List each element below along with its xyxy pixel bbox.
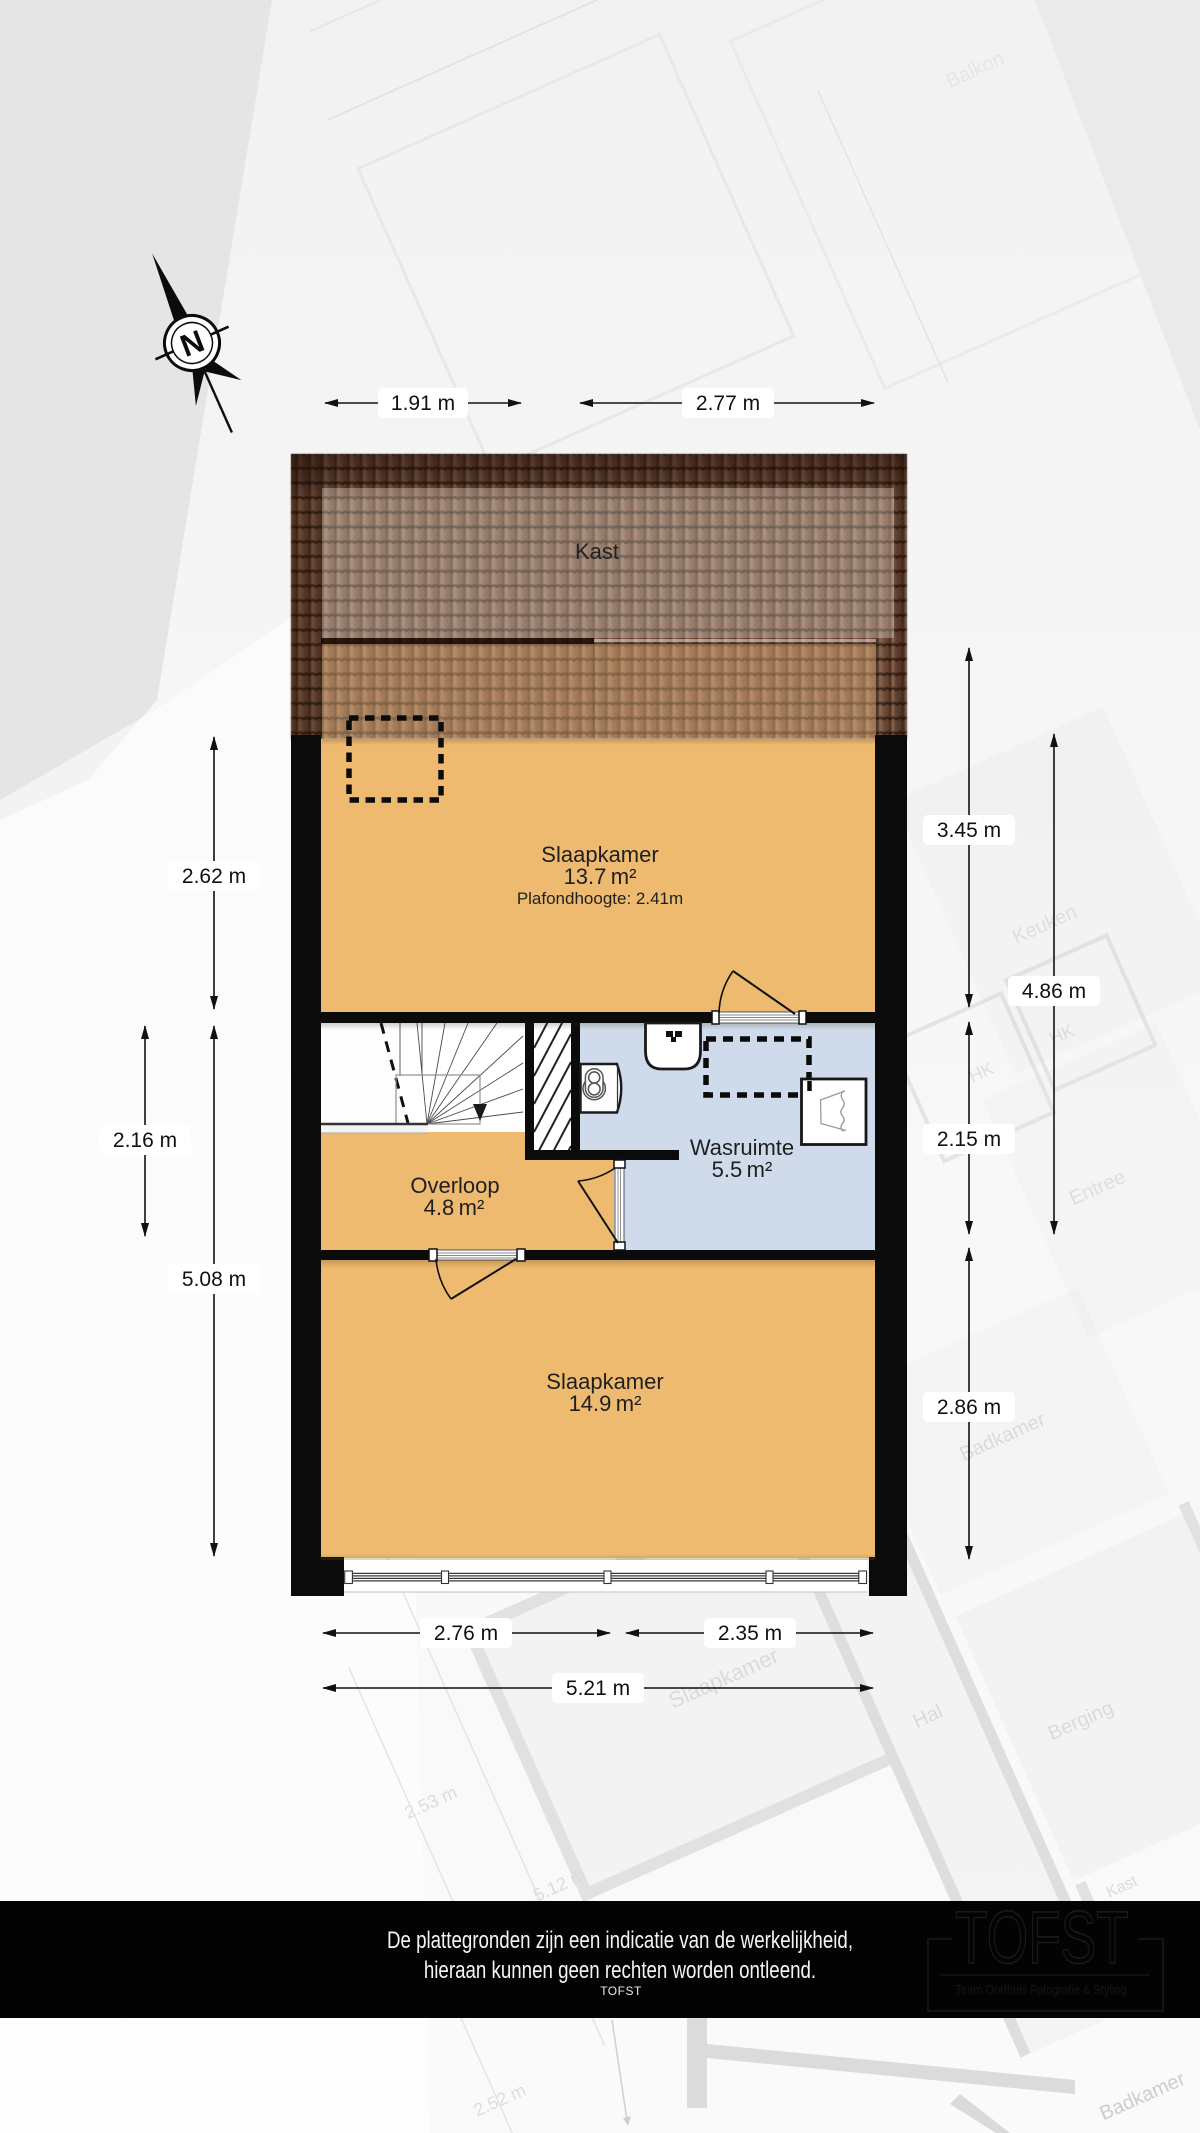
svg-text:2.35 m: 2.35 m	[718, 1622, 782, 1645]
svg-text:4.8 m²: 4.8 m²	[424, 1195, 485, 1220]
svg-text:3.45 m: 3.45 m	[937, 819, 1001, 842]
svg-text:2.16 m: 2.16 m	[113, 1129, 177, 1152]
svg-text:Plafondhoogte: 2.41m: Plafondhoogte: 2.41m	[517, 889, 683, 908]
svg-text:Team Oorthuis Fotografie & Sty: Team Oorthuis Fotografie & Styling	[955, 1982, 1126, 1997]
svg-text:4.86 m: 4.86 m	[1022, 980, 1086, 1003]
svg-text:2.86 m: 2.86 m	[937, 1396, 1001, 1419]
svg-text:13.7 m²: 13.7 m²	[564, 864, 637, 889]
svg-text:5.5 m²: 5.5 m²	[712, 1157, 773, 1182]
svg-text:TOFST: TOFST	[600, 1984, 642, 1998]
svg-text:5.08 m: 5.08 m	[182, 1268, 246, 1291]
svg-text:Kast: Kast	[575, 539, 619, 564]
svg-text:14.9 m²: 14.9 m²	[569, 1391, 642, 1416]
svg-text:2.62 m: 2.62 m	[182, 865, 246, 888]
svg-text:2.15 m: 2.15 m	[937, 1128, 1001, 1151]
svg-text:2.77 m: 2.77 m	[696, 392, 760, 415]
svg-text:2.76 m: 2.76 m	[434, 1622, 498, 1645]
svg-text:hieraan kunnen geen rechten wo: hieraan kunnen geen rechten worden ontle…	[424, 1957, 816, 1984]
svg-text:5.21 m: 5.21 m	[566, 1677, 630, 1700]
svg-text:1.91 m: 1.91 m	[391, 392, 455, 415]
svg-text:De plattegronden zijn een indi: De plattegronden zijn een indicatie van …	[387, 1927, 853, 1954]
svg-text:TOFST: TOFST	[955, 1896, 1129, 1979]
